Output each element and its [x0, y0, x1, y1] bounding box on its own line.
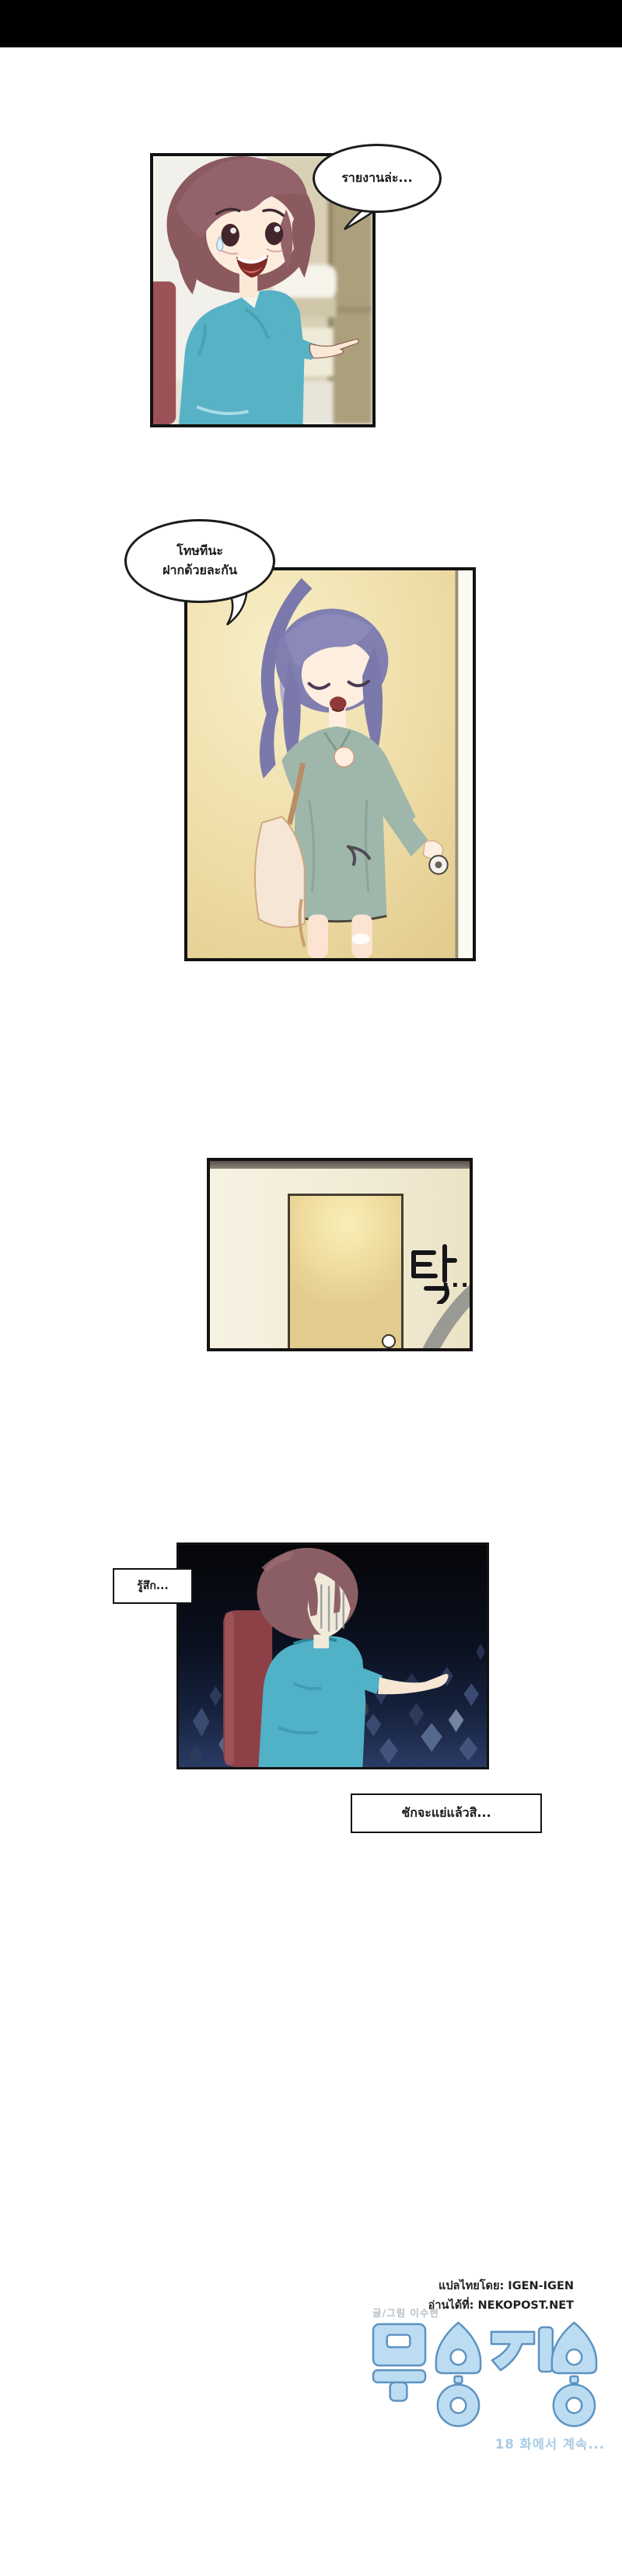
translator-credit: แปลไทยโดย: IGEN-IGEN — [334, 2277, 574, 2296]
speech-bubble-2-line1: โทษทีนะ — [176, 542, 223, 561]
source-credit: อ่านได้ที่: NEKOPOST.NET — [334, 2296, 574, 2316]
top-black-bar — [0, 0, 622, 47]
door-knob — [382, 1334, 396, 1348]
panel-3: 탁 ... — [207, 1158, 473, 1351]
speech-bubble-1: รายงานล่ะ... — [313, 144, 442, 213]
caption-top-text: รู้สึก... — [137, 1577, 169, 1595]
caption-bottom-text: ชักจะแย่แล้วสิ... — [401, 1804, 491, 1823]
panel-2 — [184, 567, 476, 961]
panel-4-artwork — [179, 1545, 487, 1767]
logo-text: 무용지용 — [372, 2320, 599, 2429]
series-logo: 무용지용 — [372, 2320, 599, 2429]
author-credit: 글/그림 이수현 — [372, 2305, 439, 2320]
caption-box-top: รู้สึก... — [113, 1568, 193, 1604]
panel-2-artwork — [187, 570, 473, 958]
speech-bubble-2: โทษทีนะ ฝากด้วยละกัน — [124, 519, 275, 603]
webtoon-page: รายงานล่ะ... — [0, 0, 622, 2576]
continue-notice: 18 화에서 계속... — [420, 2434, 605, 2452]
closed-door — [288, 1194, 404, 1351]
panel-4 — [176, 1542, 489, 1769]
wall-top-trim — [210, 1161, 470, 1169]
speech-bubble-1-text: รายงานล่ะ... — [341, 169, 412, 188]
chair-back — [153, 281, 176, 424]
raised-hand — [334, 747, 354, 767]
speech-bubble-2-line2: ฝากด้วยละกัน — [162, 561, 237, 580]
sound-effect-ellipsis: ... — [442, 1268, 470, 1292]
caption-box-bottom: ชักจะแย่แล้วสิ... — [351, 1793, 542, 1833]
credits-block: แปลไทยโดย: IGEN-IGEN อ่านได้ที่: NEKOPOS… — [334, 2277, 574, 2315]
